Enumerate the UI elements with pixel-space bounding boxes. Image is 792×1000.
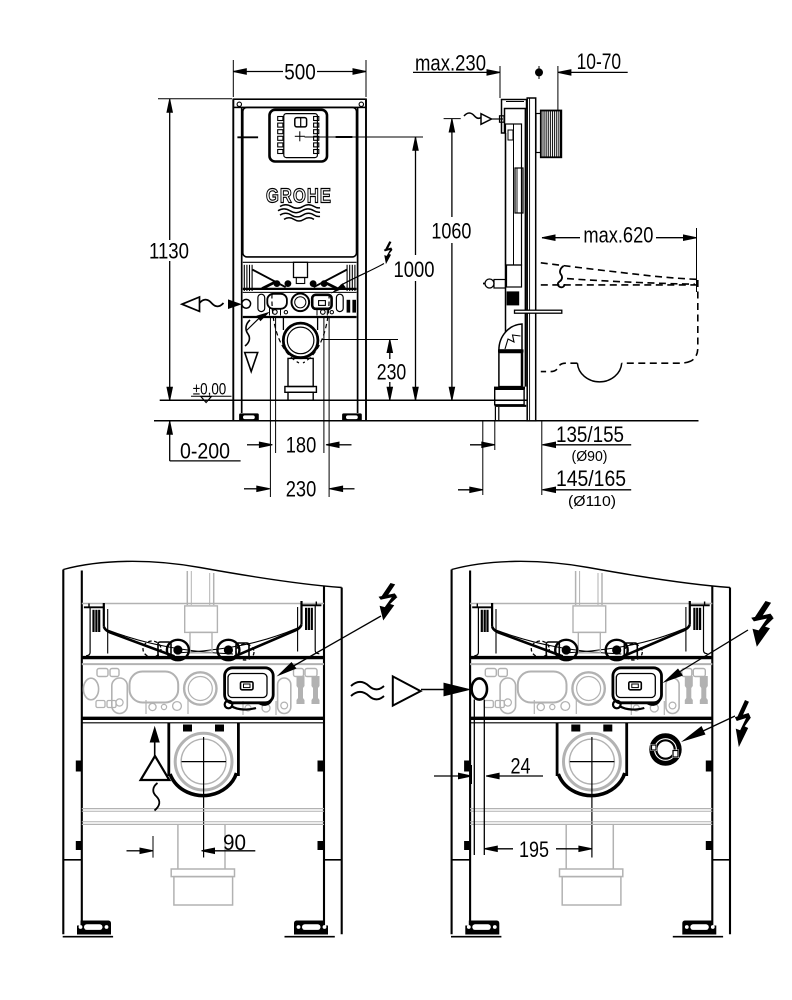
svg-text:500: 500 [284, 60, 316, 85]
svg-text:135/155: 135/155 [556, 422, 624, 447]
svg-text:180: 180 [286, 433, 317, 458]
svg-text:(Ø90): (Ø90) [572, 448, 608, 465]
svg-text:10-70: 10-70 [577, 49, 622, 74]
svg-text:(Ø110): (Ø110) [568, 493, 616, 510]
svg-text:145/165: 145/165 [556, 466, 626, 491]
svg-text:230: 230 [286, 476, 317, 501]
svg-text:GROHE: GROHE [266, 186, 332, 208]
svg-text:1060: 1060 [431, 219, 471, 244]
svg-text:1130: 1130 [149, 239, 189, 264]
svg-text:24: 24 [511, 754, 531, 779]
svg-text:±0,00: ±0,00 [193, 380, 227, 398]
svg-text:max.620: max.620 [583, 223, 653, 248]
svg-text:0-200: 0-200 [180, 439, 230, 464]
svg-text:1000: 1000 [394, 257, 435, 282]
svg-text:195: 195 [519, 837, 549, 862]
svg-text:90: 90 [223, 830, 246, 855]
svg-text:230: 230 [377, 360, 407, 385]
